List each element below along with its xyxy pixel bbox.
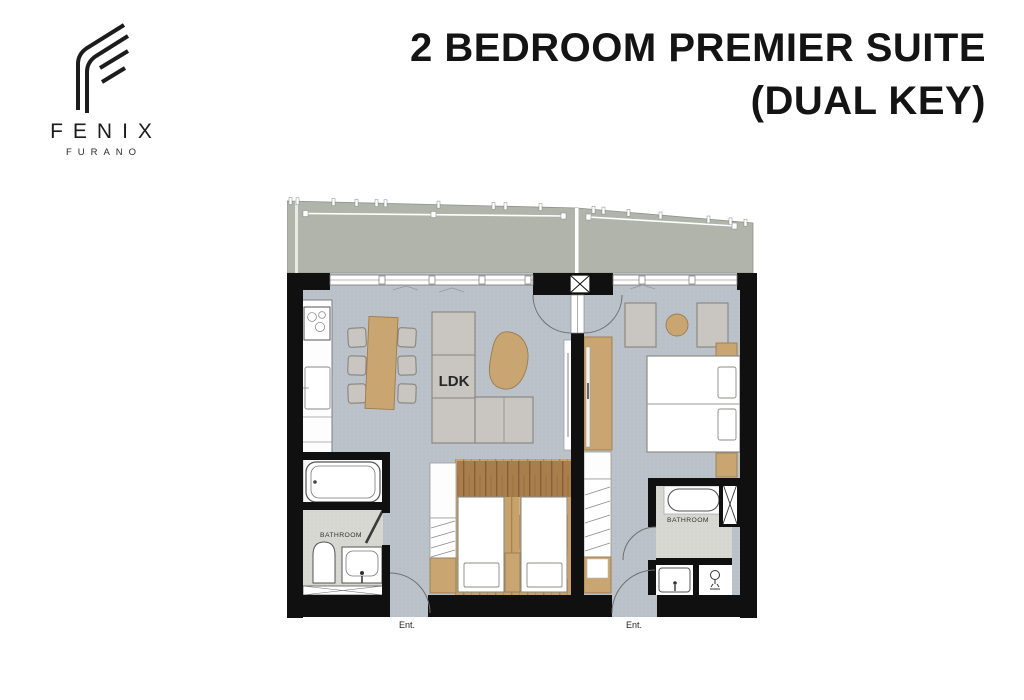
- brand-subname: FURANO: [36, 147, 166, 158]
- round-table: [666, 314, 688, 336]
- title-line-1: 2 BEDROOM PREMIER SUITE: [410, 22, 986, 75]
- bathroom-right-label: BATHROOM: [667, 517, 709, 524]
- storage-cabinet-tan: [584, 557, 611, 593]
- pillow: [527, 563, 562, 587]
- storage-cabinet: [430, 463, 456, 518]
- window-band-left: [330, 275, 533, 285]
- bathtub: [668, 489, 719, 511]
- pillow: [718, 367, 736, 398]
- storage-cabinet-tan: [430, 558, 456, 593]
- armchair: [625, 303, 656, 347]
- fenix-f-logo-mark-icon: [62, 20, 140, 114]
- floor-plan: LDK: [287, 195, 759, 643]
- title-line-2: (DUAL KEY): [410, 75, 986, 128]
- balcony: [287, 198, 753, 274]
- dining-table: [365, 316, 398, 409]
- entrance-label-right: Ent.: [626, 620, 642, 630]
- storage-cabinet: [584, 452, 611, 479]
- bathroom-left-label: BATHROOM: [320, 532, 362, 539]
- logo-block: FENIX FURANO: [36, 20, 166, 158]
- bathroom-left: BATHROOM: [303, 452, 390, 595]
- toilet: [313, 542, 335, 583]
- washbasin: [659, 568, 690, 592]
- nightstand: [716, 453, 737, 477]
- bathtub: [306, 462, 380, 502]
- page-title: 2 BEDROOM PREMIER SUITE (DUAL KEY): [410, 22, 986, 128]
- divider-wall: [571, 333, 584, 617]
- window-band-right: [613, 275, 737, 285]
- wardrobe: [584, 337, 612, 450]
- living-room-label: LDK: [439, 373, 470, 390]
- balcony-divider: [575, 208, 579, 273]
- shaft-box: [719, 481, 740, 527]
- kitchen-sink: [302, 367, 330, 409]
- luggage-rack: [430, 518, 456, 558]
- bed-headboard-panel: [457, 461, 571, 497]
- luggage-rack: [584, 479, 611, 557]
- brochure-page: FENIX FURANO 2 BEDROOM PREMIER SUITE (DU…: [0, 0, 1024, 700]
- dining-set: [348, 316, 417, 409]
- shaft-box: [570, 275, 590, 293]
- bathroom-left-hatch-panel: [303, 586, 383, 595]
- brand-name: FENIX: [36, 120, 166, 144]
- entrance-label-left: Ent.: [399, 620, 415, 630]
- pillow: [718, 409, 736, 440]
- kitchen-counter: [302, 300, 332, 467]
- cooktop: [304, 307, 330, 340]
- armchair: [697, 303, 728, 347]
- nightstand: [505, 553, 520, 592]
- pillow: [464, 563, 499, 587]
- washbasin: [342, 547, 382, 583]
- storage-left-unit: [430, 463, 456, 593]
- storage-divider-right: [584, 337, 612, 593]
